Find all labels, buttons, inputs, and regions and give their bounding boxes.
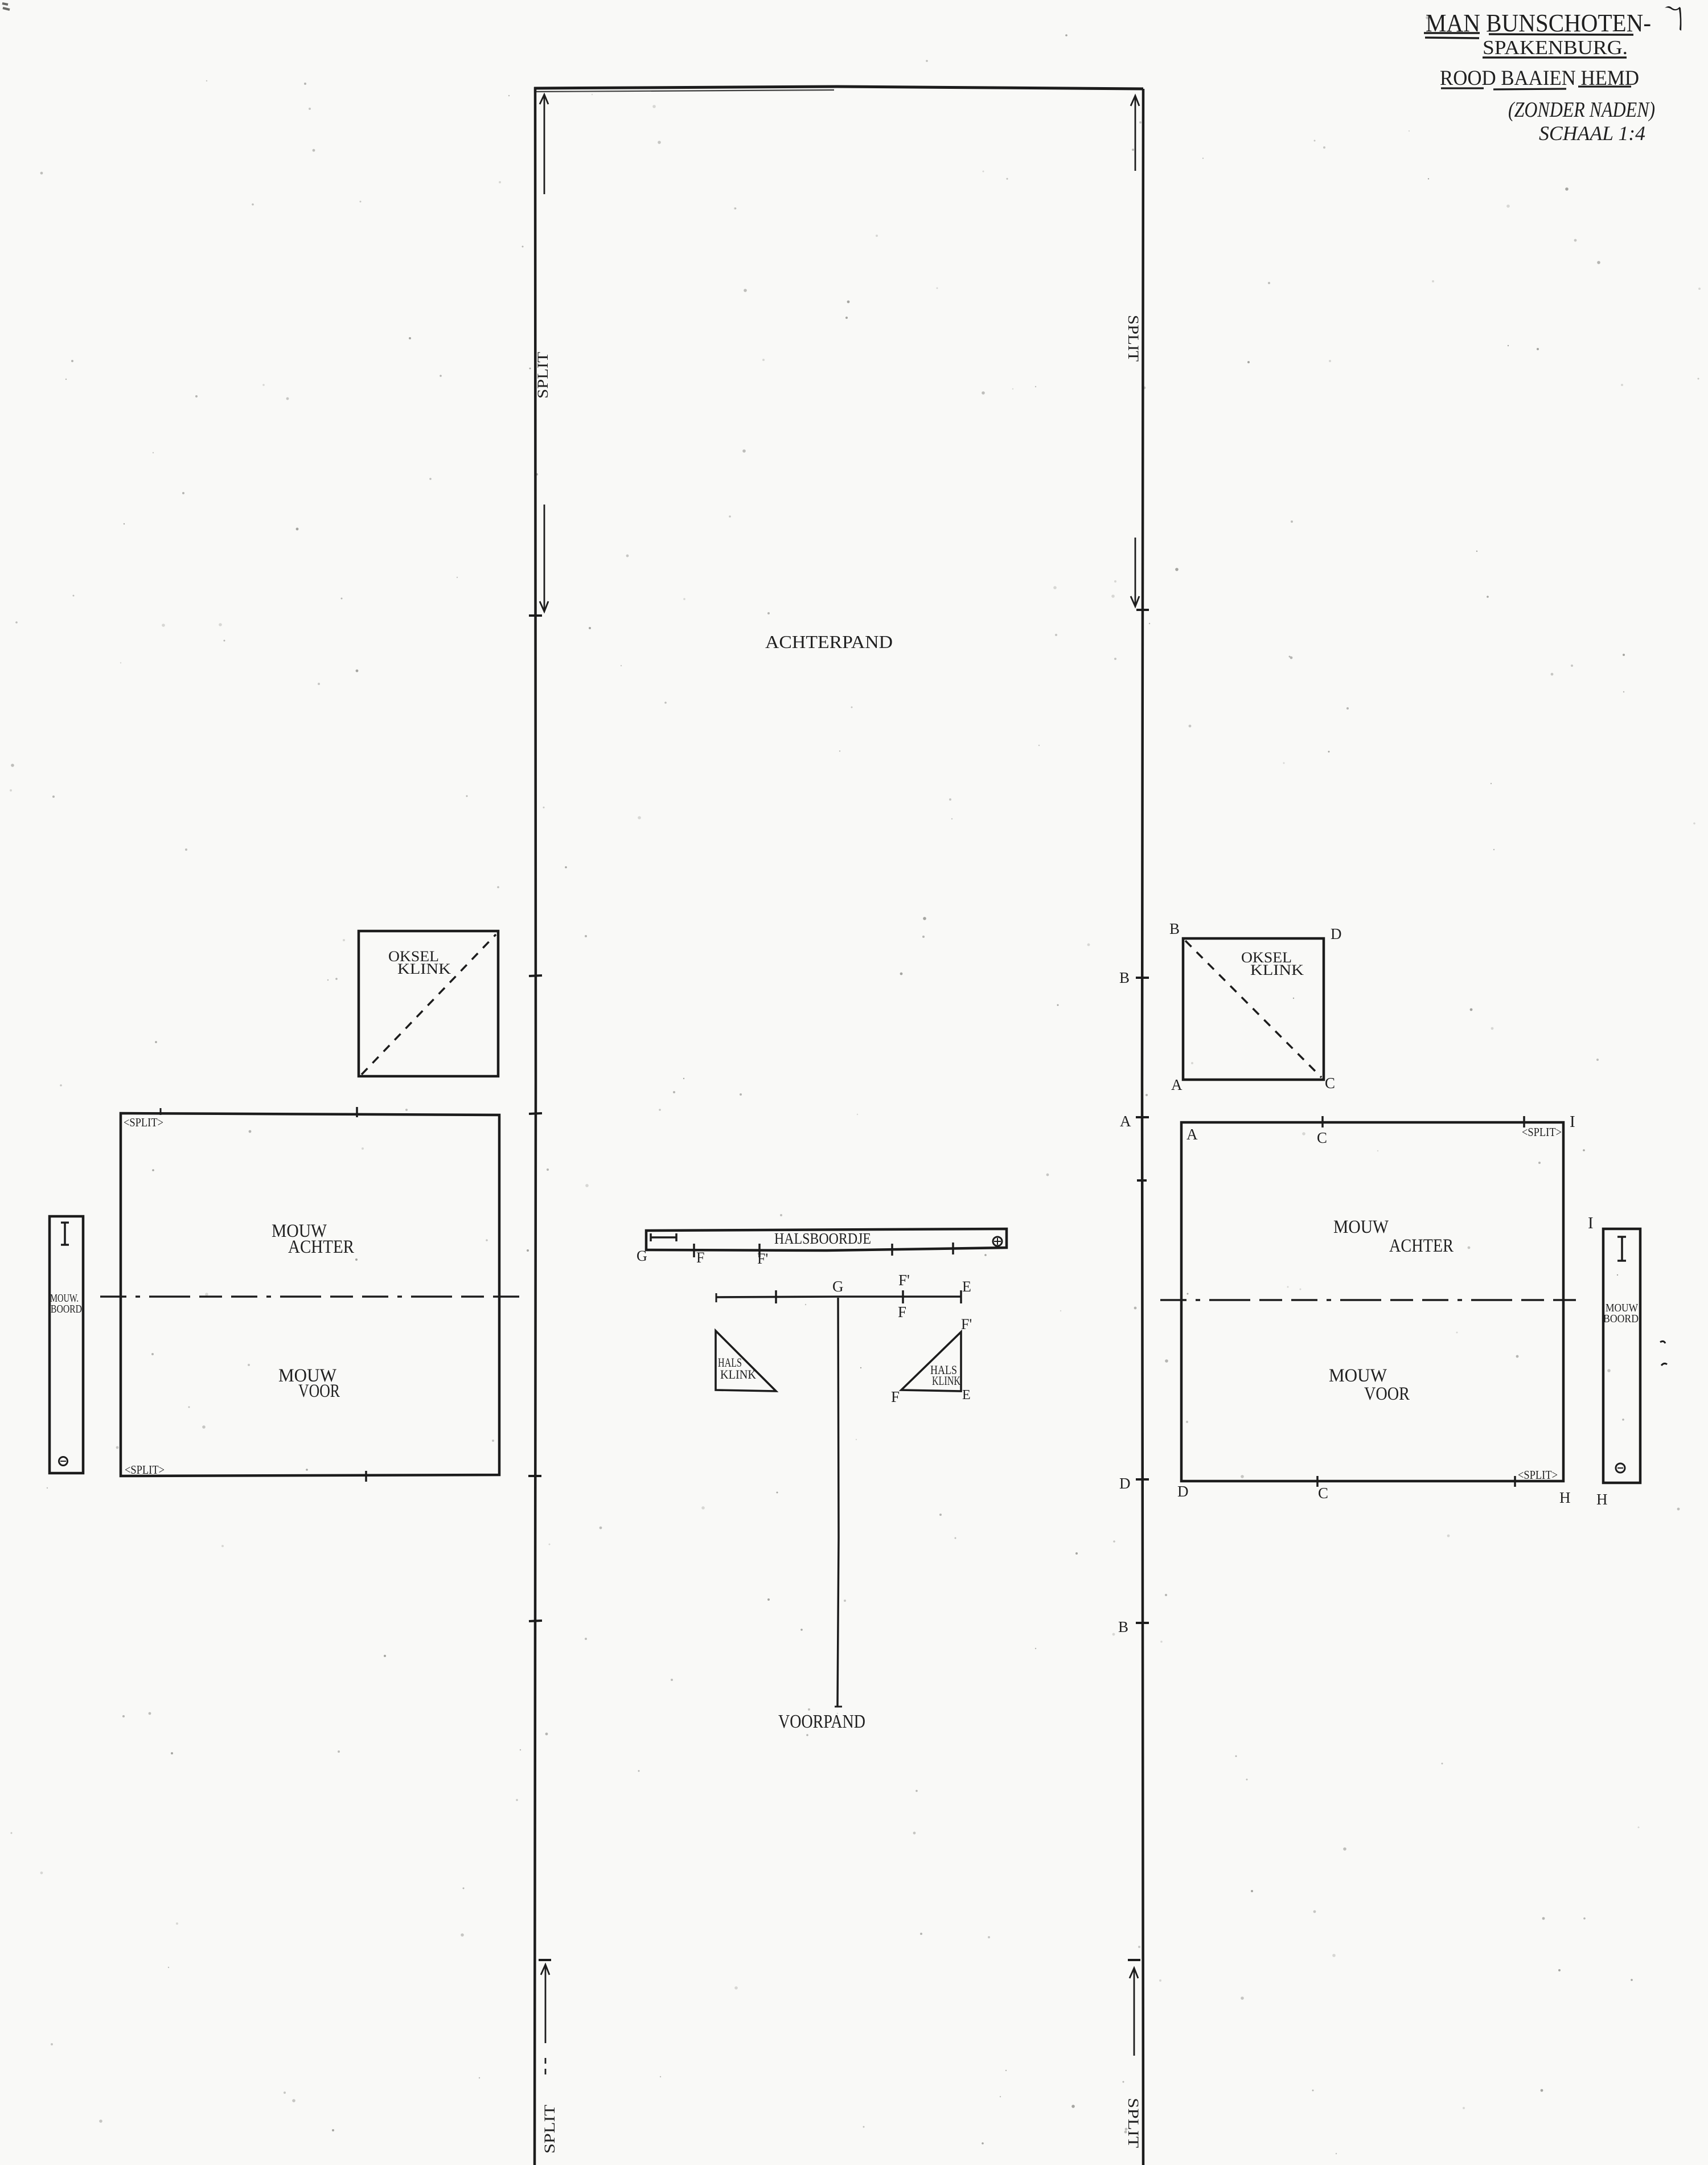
svg-text:ACHTERPAND: ACHTERPAND (765, 632, 893, 652)
svg-text:MOUW: MOUW (1329, 1366, 1387, 1386)
svg-text:SCHAAL 1:4: SCHAAL 1:4 (1539, 122, 1645, 145)
svg-text:G: G (637, 1248, 647, 1264)
svg-text:A: A (1171, 1076, 1183, 1093)
svg-text:KLINK: KLINK (720, 1367, 756, 1381)
svg-text:I: I (1588, 1214, 1594, 1232)
svg-text:SPLIT: SPLIT (535, 352, 551, 399)
svg-text:VOOR: VOOR (1364, 1384, 1410, 1404)
svg-text:F: F (891, 1388, 900, 1405)
svg-text:ACHTER: ACHTER (288, 1237, 354, 1257)
svg-text:E: E (962, 1388, 971, 1403)
svg-text:ACHTER: ACHTER (1389, 1236, 1454, 1256)
svg-text:VOORPAND: VOORPAND (778, 1711, 865, 1732)
svg-text:C: C (1325, 1075, 1335, 1092)
svg-text:(ZONDER NADEN): (ZONDER NADEN) (1508, 98, 1655, 122)
svg-text:<SPLIT>: <SPLIT> (1522, 1125, 1562, 1139)
svg-text:<SPLIT>: <SPLIT> (1518, 1468, 1558, 1482)
svg-text:SPLIT: SPLIT (1125, 315, 1142, 362)
svg-text:D: D (1331, 925, 1342, 942)
svg-text:F: F (696, 1249, 704, 1266)
svg-text:F': F' (898, 1272, 910, 1289)
svg-text:MOUW: MOUW (1333, 1217, 1389, 1237)
svg-text:VOOR: VOOR (298, 1381, 340, 1401)
svg-text:C: C (1317, 1129, 1327, 1146)
svg-text:G: G (832, 1278, 844, 1295)
svg-text:F: F (898, 1303, 906, 1321)
svg-text:HALSBOORDJE: HALSBOORDJE (774, 1230, 871, 1247)
svg-text:H: H (1559, 1489, 1571, 1506)
svg-text:F': F' (757, 1250, 768, 1267)
svg-text:D: D (1119, 1475, 1131, 1492)
svg-text:F': F' (961, 1316, 972, 1332)
svg-text:B: B (1119, 969, 1130, 986)
svg-text:H: H (1596, 1491, 1608, 1508)
svg-text:<SPLIT>: <SPLIT> (125, 1463, 165, 1477)
svg-text:SPLIT: SPLIT (541, 2105, 558, 2154)
svg-text:KLINK: KLINK (932, 1373, 960, 1388)
svg-text:KLINK: KLINK (397, 961, 451, 977)
svg-text:BOORD: BOORD (51, 1303, 82, 1315)
svg-text:BOORD: BOORD (1603, 1313, 1639, 1325)
svg-text:KLINK: KLINK (1250, 962, 1304, 978)
svg-text:I: I (1570, 1113, 1575, 1131)
svg-text:SPAKENBURG.: SPAKENBURG. (1483, 36, 1628, 59)
svg-text:<SPLIT>: <SPLIT> (124, 1116, 163, 1129)
svg-text:A: A (1186, 1126, 1198, 1143)
svg-text:E: E (962, 1278, 971, 1295)
svg-text:SPLIT: SPLIT (1125, 2098, 1142, 2148)
svg-text:D: D (1177, 1483, 1189, 1500)
svg-text:B: B (1169, 920, 1180, 937)
svg-text:B: B (1118, 1618, 1128, 1635)
svg-text:C: C (1318, 1485, 1328, 1502)
svg-text:A: A (1120, 1113, 1131, 1130)
